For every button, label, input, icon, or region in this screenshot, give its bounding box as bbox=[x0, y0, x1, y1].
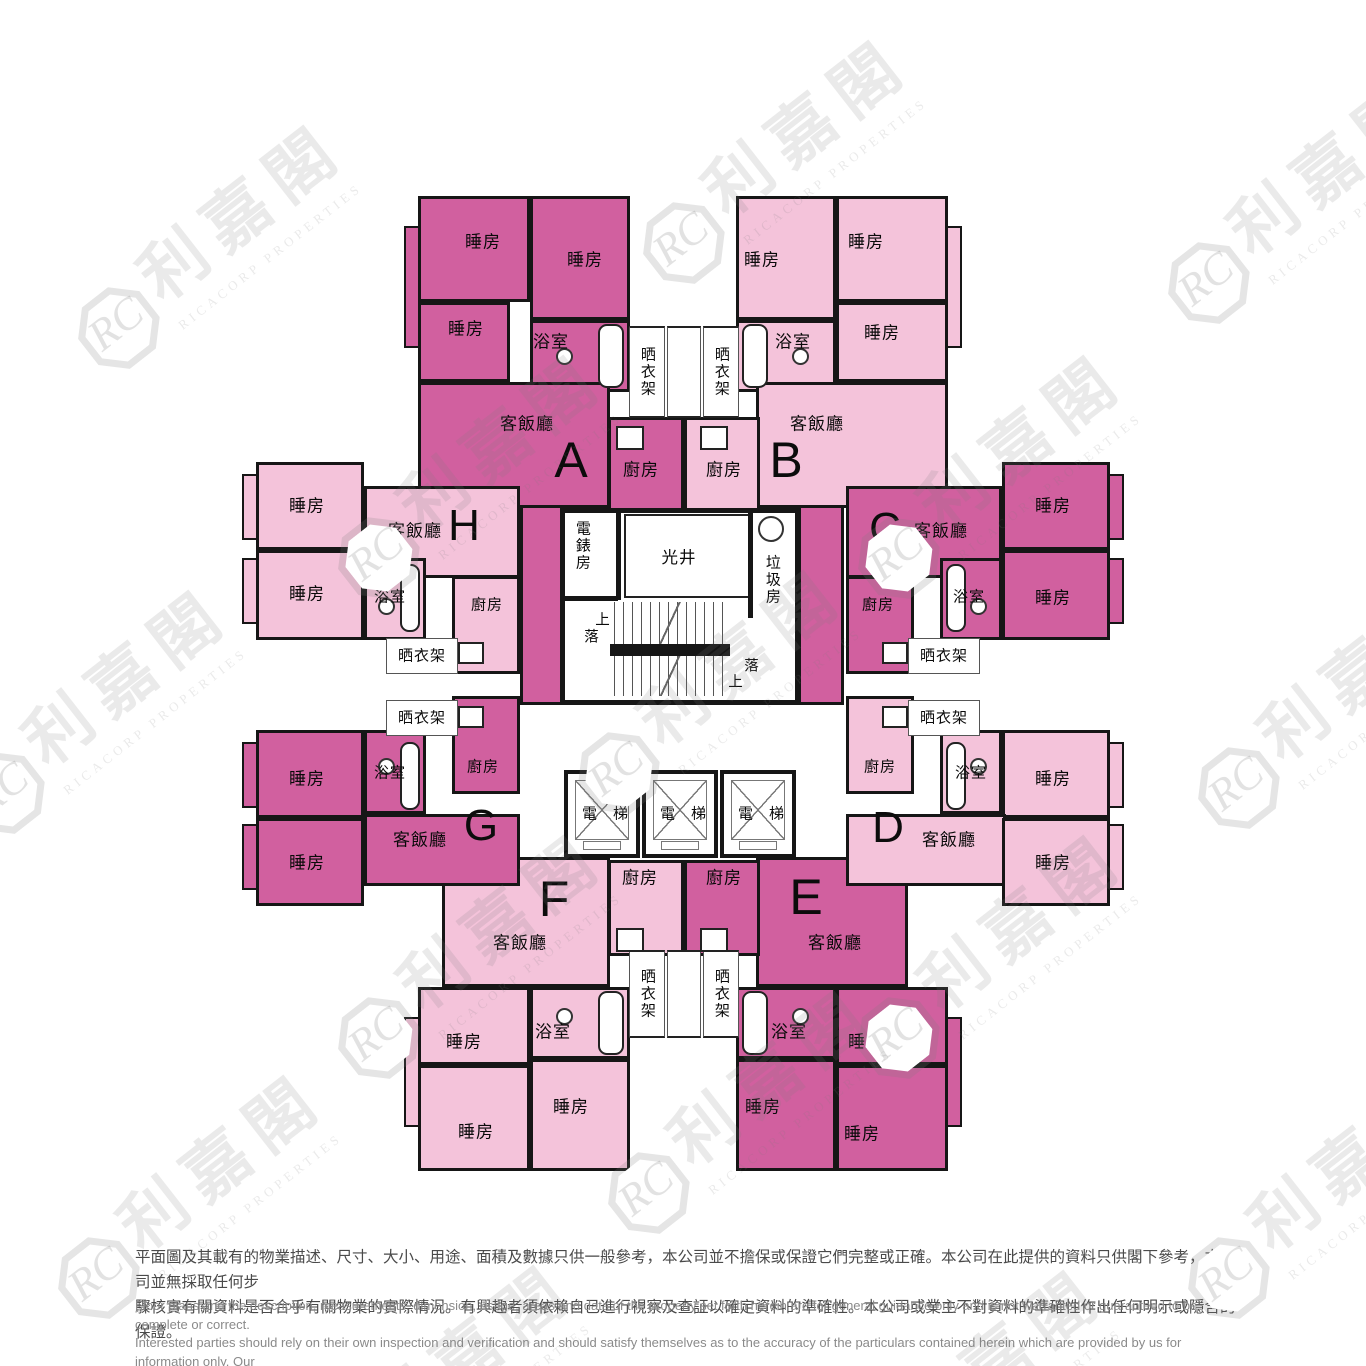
unit-e-bedroom-3 bbox=[836, 1065, 948, 1171]
label-stair-down-left: 落 bbox=[584, 626, 600, 647]
unit-letter-b: B bbox=[769, 431, 802, 489]
unit-letter-a: A bbox=[554, 431, 587, 489]
label-h-bathroom: 浴室 bbox=[374, 586, 406, 607]
label-d-bedroom-1: 睡房 bbox=[1035, 765, 1071, 790]
meter-room-wall-2 bbox=[560, 596, 618, 601]
label-stair-down-right: 落 bbox=[744, 655, 760, 676]
watermark-latin-text: RICACORP PROPERTIES bbox=[1285, 1123, 1366, 1283]
label-a-bedroom-3: 睡房 bbox=[448, 315, 484, 340]
corridor-strip-right bbox=[798, 486, 844, 705]
label-f-bedroom-3: 睡房 bbox=[458, 1118, 494, 1143]
label-c-bedroom-2: 睡房 bbox=[1035, 584, 1071, 609]
unit-c-bay-window-1 bbox=[1108, 474, 1124, 540]
label-lift3-char2: 梯 bbox=[769, 803, 785, 824]
ricacorp-logo-rc: RC bbox=[0, 745, 47, 833]
label-f-bathroom: 浴室 bbox=[535, 1018, 571, 1043]
label-drying-c: 晒衣架 bbox=[920, 645, 968, 666]
unit-a-bay-window bbox=[404, 226, 420, 348]
unit-letter-f: F bbox=[539, 870, 570, 928]
ricacorp-watermark: RC 利嘉閣 RICACORP PROPERTIES bbox=[0, 0, 400, 388]
kitchen-appliance-b bbox=[700, 426, 728, 450]
label-drying-top-a: 晒衣架 bbox=[639, 347, 655, 398]
label-e-bedroom-3: 睡房 bbox=[844, 1120, 880, 1145]
label-h-kitchen: 廚房 bbox=[471, 594, 503, 615]
disclaimer-english: Floor plans and the description, measure… bbox=[135, 1297, 1240, 1366]
meter-room-wall bbox=[616, 508, 621, 600]
kitchen-appliance-c bbox=[882, 642, 908, 664]
refuse-room-wall bbox=[748, 508, 753, 618]
label-drying-bottom-f: 晒衣架 bbox=[639, 969, 655, 1020]
ricacorp-logo-rc: RC bbox=[1189, 740, 1282, 828]
label-g-bedroom-2: 睡房 bbox=[289, 849, 325, 874]
label-d-kitchen: 廚房 bbox=[864, 756, 896, 777]
disclaimer-en-line2: Interested parties should rely on their … bbox=[135, 1334, 1240, 1366]
label-lift1-char1: 電 bbox=[582, 803, 598, 824]
label-a-bathroom: 浴室 bbox=[533, 328, 569, 353]
ricacorp-logo-rc: RC bbox=[634, 195, 727, 283]
stair-arrow-lower bbox=[614, 656, 726, 696]
label-g-kitchen: 廚房 bbox=[467, 756, 499, 777]
label-h-living: 客飯廳 bbox=[388, 517, 442, 542]
ricacorp-logo-icon: RC bbox=[1184, 733, 1293, 842]
unit-f-bay-window bbox=[404, 1017, 420, 1127]
unit-f-bedroom-1 bbox=[418, 987, 530, 1065]
kitchen-appliance-d bbox=[882, 706, 908, 728]
shaft-bottom-middle bbox=[667, 950, 701, 1038]
unit-e-bedroom-1 bbox=[836, 987, 948, 1065]
refuse-chute-circle bbox=[758, 516, 784, 542]
label-d-living: 客飯廳 bbox=[922, 826, 976, 851]
corridor-strip-left bbox=[520, 486, 564, 705]
label-drying-g: 晒衣架 bbox=[398, 707, 446, 728]
watermark-latin-text: RICACORP PROPERTIES bbox=[955, 883, 1154, 1043]
unit-d-bay-window-2 bbox=[1108, 824, 1124, 890]
label-lift2-char1: 電 bbox=[660, 803, 676, 824]
watermark-latin-text: RICACORP PROPERTIES bbox=[175, 173, 374, 333]
ricacorp-logo-rc: RC bbox=[1159, 235, 1252, 323]
kitchen-appliance-e bbox=[700, 928, 728, 952]
bathtub-f bbox=[598, 991, 624, 1055]
bathtub-b bbox=[742, 324, 768, 388]
label-b-bedroom-1: 睡房 bbox=[848, 228, 884, 253]
label-f-bedroom-2: 睡房 bbox=[553, 1093, 589, 1118]
label-h-bedroom-1: 睡房 bbox=[289, 492, 325, 517]
kitchen-appliance-a bbox=[616, 426, 644, 450]
kitchen-appliance-f bbox=[616, 928, 644, 952]
label-c-bathroom: 浴室 bbox=[953, 586, 985, 607]
unit-b-bay-window bbox=[946, 226, 962, 348]
watermark-cjk-text: 利嘉閣 bbox=[115, 96, 363, 319]
label-d-bedroom-2: 睡房 bbox=[1035, 849, 1071, 874]
stair-arrow-upper bbox=[614, 602, 726, 644]
label-b-bedroom-3: 睡房 bbox=[864, 319, 900, 344]
ricacorp-logo-icon: RC bbox=[1154, 228, 1263, 337]
ricacorp-watermark: RC 利嘉閣 RICACORP PROPERTIES bbox=[1070, 0, 1366, 343]
ricacorp-logo-icon: RC bbox=[629, 188, 738, 297]
label-h-bedroom-2: 睡房 bbox=[289, 580, 325, 605]
ricacorp-logo-icon: RC bbox=[0, 738, 59, 847]
kitchen-appliance-g bbox=[458, 706, 484, 728]
watermark-latin-text: RICACORP PROPERTIES bbox=[1295, 633, 1366, 793]
unit-letter-h: H bbox=[448, 501, 480, 551]
label-drying-h: 晒衣架 bbox=[398, 645, 446, 666]
lift-3-door bbox=[739, 841, 777, 850]
label-b-bedroom-2: 睡房 bbox=[744, 246, 780, 271]
label-a-living: 客飯廳 bbox=[500, 410, 554, 435]
label-g-bathroom: 浴室 bbox=[374, 762, 406, 783]
label-a-bedroom-1: 睡房 bbox=[465, 228, 501, 253]
ricacorp-logo-rc: RC bbox=[69, 280, 162, 368]
label-f-living: 客飯廳 bbox=[493, 929, 547, 954]
stair-mid-landing bbox=[610, 644, 730, 656]
unit-c-bay-window-2 bbox=[1108, 558, 1124, 624]
lift-1-door bbox=[583, 841, 621, 850]
label-drying-bottom-e: 晒衣架 bbox=[713, 969, 729, 1020]
label-b-kitchen: 廚房 bbox=[706, 456, 742, 481]
ricacorp-logo-rc: RC bbox=[49, 1230, 142, 1318]
lift-2-door bbox=[661, 841, 699, 850]
label-lift3-char1: 電 bbox=[738, 803, 754, 824]
unit-g-bay-window-2 bbox=[242, 824, 258, 890]
label-a-kitchen: 廚房 bbox=[623, 456, 659, 481]
unit-letter-g: G bbox=[464, 801, 498, 851]
ricacorp-logo-icon: RC bbox=[64, 273, 173, 382]
watermark-latin-text: RICACORP PROPERTIES bbox=[60, 638, 259, 798]
unit-letter-c: C bbox=[869, 504, 901, 554]
watermark-cjk-text: 利嘉閣 bbox=[0, 561, 248, 784]
unit-d-bay-window-1 bbox=[1108, 742, 1124, 808]
unit-h-bay-window-2 bbox=[242, 558, 258, 624]
label-g-living: 客飯廳 bbox=[393, 826, 447, 851]
watermark-latin-text: RICACORP PROPERTIES bbox=[1265, 128, 1366, 288]
label-c-bedroom-1: 睡房 bbox=[1035, 492, 1071, 517]
unit-letter-d: D bbox=[872, 803, 904, 853]
ricacorp-watermark: RC 利嘉閣 RICACORP PROPERTIES bbox=[1100, 452, 1366, 847]
label-e-kitchen: 廚房 bbox=[706, 864, 742, 889]
label-a-bedroom-2: 睡房 bbox=[567, 246, 603, 271]
label-drying-d: 晒衣架 bbox=[920, 707, 968, 728]
unit-h-bay-window-1 bbox=[242, 474, 258, 540]
floor-plan-page: 睡房 睡房 睡房 浴室 客飯廳 廚房 睡房 睡房 睡房 浴室 客飯廳 廚房 睡房… bbox=[0, 0, 1366, 1366]
bathtub-a bbox=[598, 324, 624, 388]
label-e-bathroom: 浴室 bbox=[771, 1018, 807, 1043]
shaft-top-middle bbox=[667, 326, 701, 418]
watermark-cjk-text: 利嘉閣 bbox=[1235, 556, 1366, 779]
label-f-kitchen: 廚房 bbox=[622, 864, 658, 889]
disclaimer-zh-line1: 平面圖及其載有的物業描述、尺寸、大小、用途、面積及數據只供一般參考，本公司並不擔… bbox=[135, 1245, 1240, 1295]
unit-e-bay-window bbox=[946, 1017, 962, 1127]
disclaimer-en-line1: Floor plans and the description, measure… bbox=[135, 1297, 1240, 1334]
label-e-living: 客飯廳 bbox=[808, 929, 862, 954]
label-refuse-room: 垃圾房 bbox=[764, 555, 780, 606]
label-g-bedroom-1: 睡房 bbox=[289, 765, 325, 790]
label-b-bathroom: 浴室 bbox=[775, 328, 811, 353]
bathtub-e bbox=[742, 991, 768, 1055]
label-light-well: 光井 bbox=[662, 544, 697, 568]
watermark-cjk-text: 利嘉閣 bbox=[1225, 1046, 1366, 1269]
label-c-living: 客飯廳 bbox=[914, 517, 968, 542]
label-f-bedroom-1: 睡房 bbox=[446, 1028, 482, 1053]
label-e-bedroom-2: 睡房 bbox=[745, 1093, 781, 1118]
kitchen-appliance-h bbox=[458, 642, 484, 664]
label-drying-top-b: 晒衣架 bbox=[713, 347, 729, 398]
label-lift1-char2: 梯 bbox=[613, 803, 629, 824]
label-meter-room: 電錶房 bbox=[574, 521, 590, 572]
label-c-kitchen: 廚房 bbox=[862, 594, 894, 615]
label-d-bathroom: 浴室 bbox=[955, 762, 987, 783]
label-e-bedroom-1: 睡房 bbox=[848, 1028, 884, 1053]
watermark-cjk-text: 利嘉閣 bbox=[1205, 51, 1366, 274]
label-lift2-char2: 梯 bbox=[691, 803, 707, 824]
unit-letter-e: E bbox=[789, 868, 822, 926]
label-stair-up-right: 上 bbox=[728, 671, 744, 692]
unit-g-bay-window-1 bbox=[242, 742, 258, 808]
watermark-cjk-text: 利嘉閣 bbox=[95, 1046, 343, 1269]
